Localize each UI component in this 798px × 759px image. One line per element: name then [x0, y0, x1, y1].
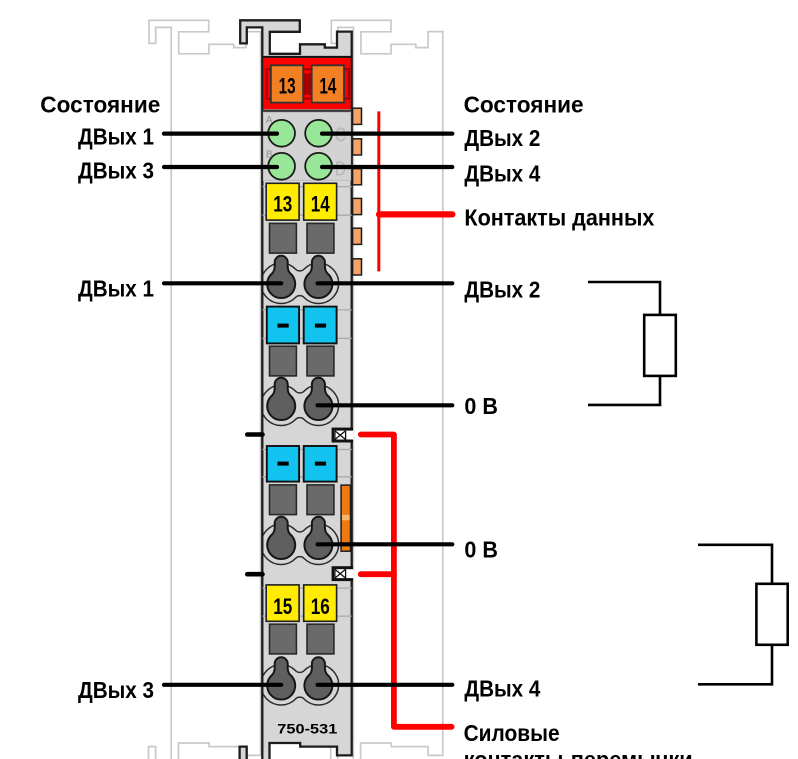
svg-text:14: 14 [319, 73, 336, 98]
svg-text:0 В: 0 В [464, 536, 498, 562]
svg-text:D: D [335, 158, 346, 181]
svg-text:ДВых 3: ДВых 3 [78, 677, 154, 703]
svg-text:16: 16 [311, 594, 330, 619]
svg-text:ДВых 4: ДВых 4 [464, 160, 540, 186]
svg-text:750-531: 750-531 [277, 722, 338, 737]
svg-text:ДВых 1: ДВых 1 [78, 275, 154, 301]
svg-text:0 В: 0 В [464, 393, 498, 419]
svg-text:Контакты данных: Контакты данных [464, 205, 654, 231]
svg-text:15: 15 [273, 594, 292, 619]
svg-text:Состояние: Состояние [40, 91, 160, 117]
svg-text:ДВых 4: ДВых 4 [464, 676, 540, 702]
svg-text:14: 14 [311, 192, 330, 217]
svg-text:13: 13 [273, 192, 292, 217]
svg-text:ДВых 2: ДВых 2 [464, 125, 540, 151]
svg-text:B: B [266, 150, 273, 161]
svg-text:Силовые: Силовые [464, 720, 560, 746]
svg-text:Состояние: Состояние [464, 91, 584, 117]
svg-text:контакты-перемычки: контакты-перемычки [464, 747, 693, 759]
svg-text:ДВых 3: ДВых 3 [78, 157, 154, 183]
svg-text:13: 13 [279, 73, 296, 98]
svg-text:A: A [266, 115, 273, 126]
svg-text:ДВых 2: ДВых 2 [464, 276, 540, 302]
svg-text:ДВых 1: ДВых 1 [78, 124, 154, 150]
